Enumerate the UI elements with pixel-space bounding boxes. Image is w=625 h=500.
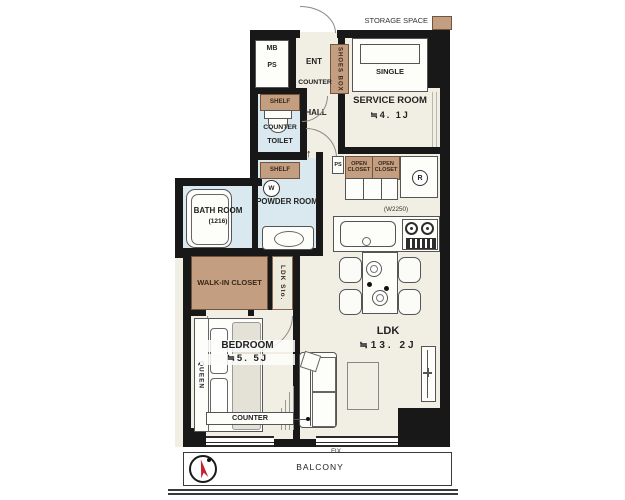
balcony-label: BALCONY — [280, 463, 360, 473]
walk-in-closet-label: WALK-IN CLOSET — [197, 279, 262, 287]
open-closet-2: OPEN CLOSET — [372, 156, 400, 180]
open-closet-2-label: OPEN CLOSET — [373, 162, 399, 174]
bedroom-counter-label: COUNTER — [206, 414, 294, 422]
storage-space-legend-label: STORAGE SPACE — [352, 17, 428, 25]
boundary-line-1 — [168, 489, 458, 491]
powder-room-label: POWDER ROOM — [256, 198, 318, 207]
stove-grill — [406, 238, 436, 249]
toilet-shelf-label: SHELF — [270, 99, 290, 106]
toilet-shelf: SHELF — [260, 94, 300, 111]
plate-icon — [372, 290, 388, 306]
wall-left-mid — [175, 186, 183, 258]
step-arrow-powder: ↑ — [306, 148, 312, 160]
toilet-counter-label: COUNTER — [256, 124, 304, 132]
single-bed-label: SINGLE — [352, 68, 428, 77]
mb-label: MB — [255, 45, 289, 53]
washing-machine-icon: W — [263, 180, 280, 197]
shelf-divider-1 — [363, 178, 364, 200]
ldk-storage-label: LDK Sto. — [279, 265, 286, 300]
bedroom-size: ≒5. 5J — [200, 354, 295, 365]
wall-service-bottom — [338, 147, 440, 154]
ps-label: PS — [255, 62, 289, 70]
walk-in-closet: WALK-IN CLOSET — [191, 256, 268, 310]
compass — [189, 455, 217, 483]
rug — [347, 362, 379, 410]
wall-toilet-bottom — [258, 152, 307, 160]
open-closet-1: OPEN CLOSET — [345, 156, 373, 180]
powder-shelf: SHELF — [260, 162, 300, 179]
hall-counter-label: COUNTER — [292, 79, 338, 87]
wall-top-right — [337, 30, 450, 38]
table-dot — [384, 286, 389, 291]
ldk-storage: LDK Sto. — [272, 256, 293, 310]
bedroom-label: BEDROOM — [200, 340, 295, 352]
kitchen-width-label: (W2250) — [366, 206, 426, 213]
bedroom-window — [206, 436, 274, 447]
refrigerator-icon: R — [412, 170, 428, 186]
wall-pillar-bottom-right — [398, 408, 440, 439]
ps-shaft: PS — [332, 156, 344, 174]
dining-chair — [398, 257, 421, 283]
powder-shelf-label: SHELF — [270, 167, 290, 174]
ldk-size: ≒13. 2J — [348, 340, 428, 352]
queen-bed-label: QUEEN — [198, 361, 205, 389]
burner-left-icon — [405, 222, 418, 235]
dining-chair — [339, 257, 362, 283]
wall-bath-powder — [252, 186, 258, 252]
tv-cross-v — [427, 368, 429, 377]
storage-space-legend-swatch — [432, 16, 452, 30]
sink-drain — [362, 237, 371, 246]
burner-right-icon — [421, 222, 434, 235]
open-closet-1-label: OPEN CLOSET — [346, 162, 372, 174]
plate-icon — [366, 261, 382, 277]
vanity-basin — [274, 231, 304, 247]
shelf-divider-2 — [381, 178, 382, 200]
dining-chair — [398, 289, 421, 315]
table-dot — [367, 282, 372, 287]
service-room-label: SERVICE ROOM — [340, 96, 440, 107]
wall-left-lower — [183, 252, 191, 439]
counter-dot — [306, 417, 310, 421]
wall-step — [175, 178, 262, 186]
ent-label: ENT — [296, 57, 332, 66]
dining-chair — [339, 289, 362, 315]
entrance-door-arc — [300, 6, 336, 33]
sofa-cushion — [312, 392, 336, 427]
floor-plan: STORAGE SPACE MB PS SHOES BOX ENT COUNTE… — [0, 0, 625, 500]
open-closet-shelves — [345, 178, 398, 200]
boundary-line-2 — [168, 493, 458, 495]
wall-right — [440, 30, 450, 447]
toilet-label: TOILET — [256, 137, 304, 145]
single-bed-pillow — [360, 44, 420, 64]
service-room-size: ≒4. 1J — [340, 110, 440, 120]
bath-room-size: (1216) — [184, 218, 252, 225]
bath-room-label: BATH ROOM — [184, 206, 252, 215]
compass-dot — [207, 458, 211, 462]
ldk-label: LDK — [348, 325, 428, 338]
ldk-window — [316, 436, 398, 447]
